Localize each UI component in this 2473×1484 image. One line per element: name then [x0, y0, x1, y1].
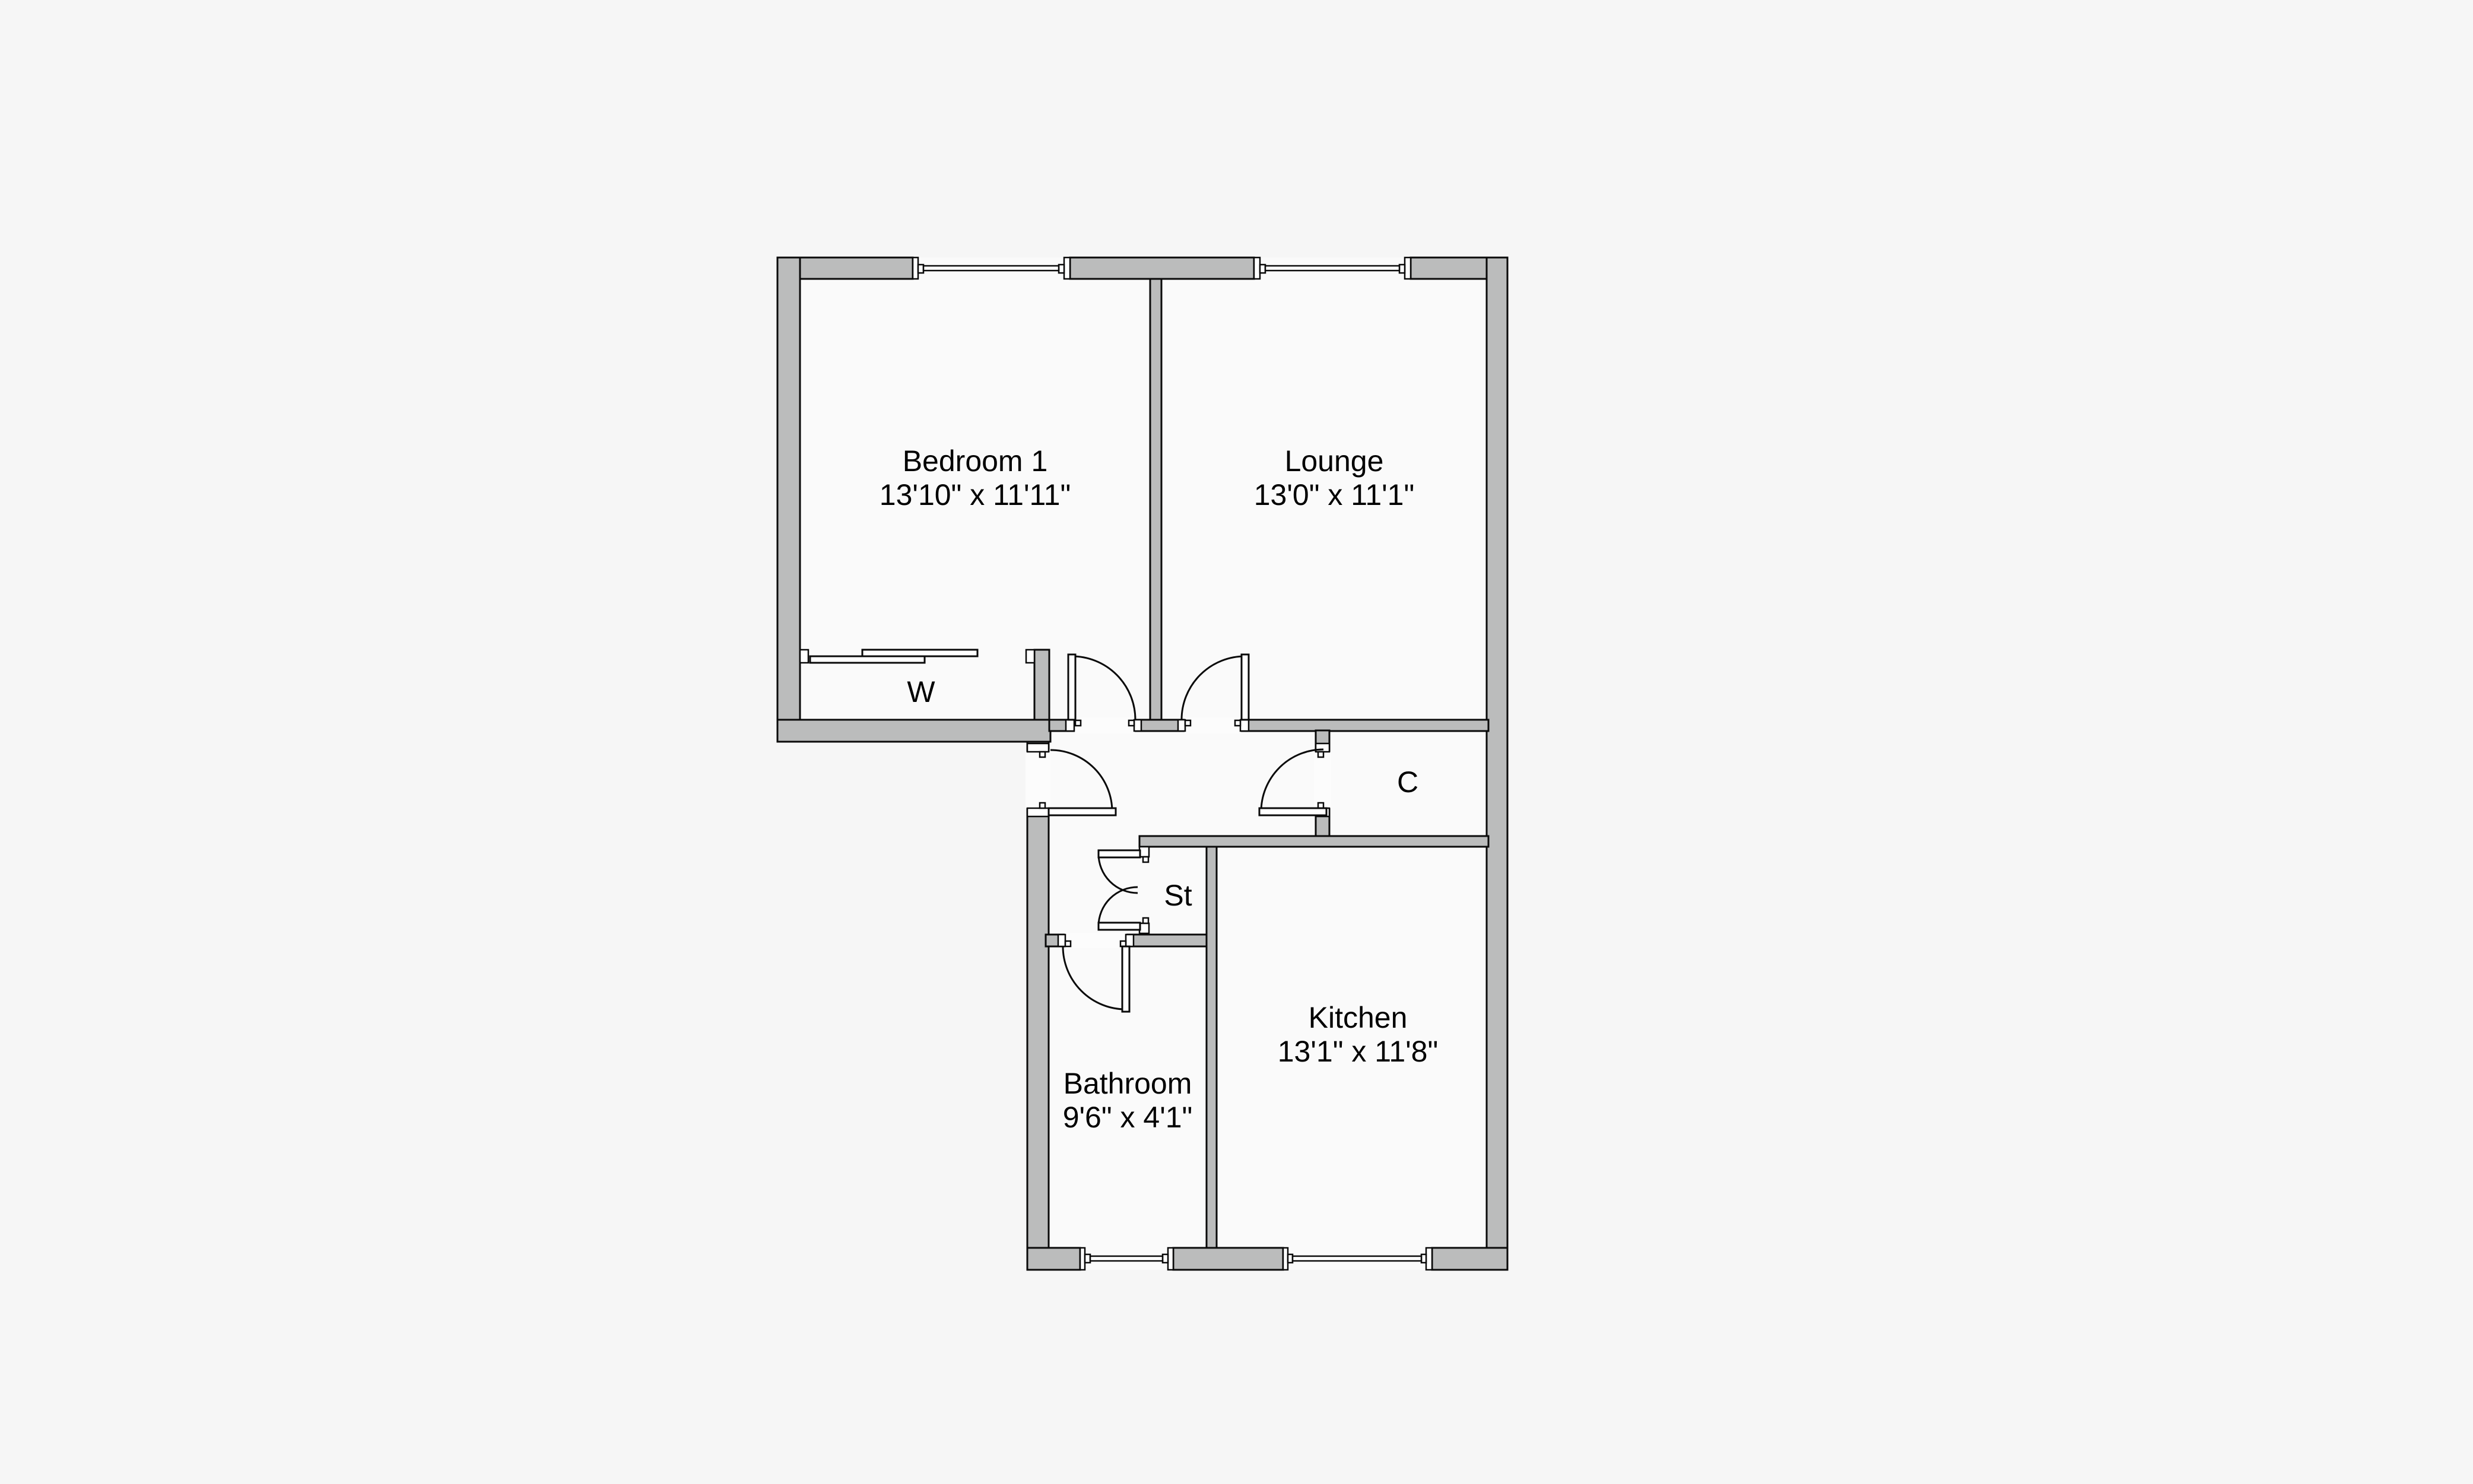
room-dims-bedroom: 13'10" x 11'11" [880, 478, 1071, 511]
door-leaf [1259, 808, 1326, 815]
door-jamb-nub [1040, 803, 1045, 808]
window-nub [1399, 265, 1405, 273]
cupboard-door-opening [1314, 752, 1331, 808]
window-jamb [1168, 1248, 1173, 1270]
wall-right [1487, 258, 1507, 1270]
door-jamb-nub [1143, 857, 1148, 862]
door-jamb-nub [1318, 752, 1323, 757]
door-jamb [1134, 720, 1141, 731]
wall-entry-left [1027, 742, 1049, 1270]
door-jamb [1240, 720, 1249, 731]
door-leaf [1068, 654, 1075, 720]
page-background: { "palette": { "background": "#f6f6f6", … [0, 0, 2473, 1484]
door-jamb-nub [1065, 941, 1071, 946]
window-nub [1163, 1254, 1168, 1263]
window-jamb [1405, 258, 1411, 279]
window-glazing [1265, 266, 1399, 271]
room-dims-bathroom: 9'6" x 4'1" [1063, 1101, 1193, 1134]
door-leaf [1242, 654, 1249, 720]
wall-wardrobe-right-stub [1034, 650, 1049, 720]
window-nub [1085, 1254, 1090, 1263]
sliding-door-panel [862, 650, 977, 656]
room-label-lounge: Lounge [1285, 444, 1384, 478]
sliding-door-jamb [800, 650, 808, 663]
door-jamb [1066, 720, 1074, 731]
door-leaf [1122, 946, 1129, 1012]
window-nub [1059, 265, 1064, 273]
window-glazing [1293, 1256, 1421, 1261]
door-jamb [1027, 743, 1049, 752]
bathroom-door-opening [1065, 933, 1126, 948]
wall-left [777, 258, 800, 742]
room-label-bedroom: Bedroom 1 [903, 444, 1048, 478]
wall-bathroom-kitchen-divider [1207, 847, 1217, 1248]
lounge-door-opening [1185, 717, 1241, 733]
bedroom-door-opening [1075, 717, 1135, 733]
door-jamb [1058, 935, 1065, 946]
wall-top-center-pier [1070, 258, 1254, 279]
wall-bedroom-lounge-divider [1150, 279, 1161, 720]
window-jamb [1254, 258, 1260, 279]
door-leaf [1099, 923, 1140, 930]
door-leaf [1049, 808, 1116, 815]
floor-plan: Bedroom 1 13'10" x 11'11" Lounge 13'0" x… [0, 0, 2473, 1484]
door-jamb-nub [1129, 720, 1134, 726]
door-jamb-nub [1185, 720, 1191, 726]
door-jamb-nub [1143, 918, 1148, 923]
window-jamb [1064, 258, 1070, 279]
door-leaf [1099, 850, 1140, 857]
wall-bottom-right-seg [1432, 1248, 1507, 1270]
room-label-bathroom: Bathroom [1064, 1067, 1192, 1100]
closet-label-wardrobe: W [907, 675, 935, 708]
wall-kitchen-top [1139, 836, 1488, 847]
closet-label-cupboard: C [1397, 765, 1418, 799]
sliding-door-jamb [1026, 650, 1034, 663]
closet-label-storage: St [1164, 879, 1192, 912]
door-jamb [1126, 935, 1134, 946]
window-jamb [913, 258, 918, 279]
wall-bottom-left-seg [1027, 1248, 1080, 1270]
window-glazing [923, 266, 1059, 271]
room-dims-kitchen: 13'1" x 11'8" [1278, 1035, 1439, 1068]
door-jamb [1178, 720, 1185, 731]
sliding-door-panel [810, 656, 925, 663]
entry-door-opening [1026, 752, 1050, 808]
wall-bottom-center-seg [1173, 1248, 1283, 1270]
wall-bedroom-bottom [777, 720, 1050, 742]
room-label-kitchen: Kitchen [1309, 1001, 1408, 1034]
door-jamb-nub [1075, 720, 1081, 726]
window-jamb [1426, 1248, 1432, 1270]
door-jamb [1027, 808, 1049, 816]
window-nub [1260, 265, 1265, 273]
door-jamb-nub [1040, 752, 1045, 757]
door-jamb-nub [1235, 720, 1240, 726]
window-nub [918, 265, 923, 273]
window-glazing [1090, 1256, 1163, 1261]
room-dims-lounge: 13'0" x 11'1" [1254, 478, 1415, 511]
